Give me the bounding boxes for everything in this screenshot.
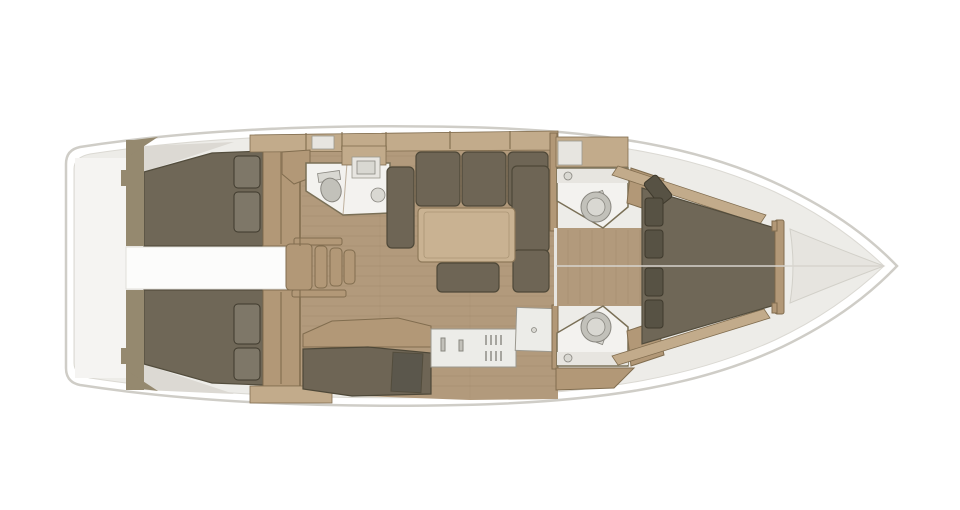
galley-faucet bbox=[441, 338, 445, 351]
aft-bulkhead-notch-top bbox=[121, 170, 126, 186]
aft-starboard-pillow-1 bbox=[234, 304, 260, 344]
galley-sink-handle bbox=[459, 340, 463, 351]
aft-bulkhead-notch-bottom bbox=[121, 348, 126, 364]
fwd-bed-footboard bbox=[775, 220, 784, 314]
yacht-floor-plan: Sailing yacht interior layout, top-down … bbox=[0, 0, 960, 510]
sofa-back-2 bbox=[462, 152, 506, 206]
aft-head-vanity-basin bbox=[357, 161, 375, 174]
fwd-corridor-doorframe bbox=[554, 228, 557, 306]
aft-walkway bbox=[126, 247, 288, 289]
fwd-pillow-4 bbox=[645, 300, 663, 328]
fwd-head-starboard-sink bbox=[564, 354, 572, 362]
stern-platform bbox=[75, 158, 126, 378]
fwd-corridor-floor bbox=[556, 228, 648, 306]
galley-worktop-dot bbox=[532, 328, 537, 333]
aft-head-sink bbox=[371, 188, 385, 202]
salon-table bbox=[418, 208, 515, 262]
fwd-pillow-1 bbox=[645, 198, 663, 226]
floor-plan-stage: Sailing yacht interior layout, top-down … bbox=[0, 0, 960, 510]
sofa-arm-left bbox=[387, 167, 414, 248]
sofa-chaise-right bbox=[513, 250, 549, 292]
aft-port-pillow-2 bbox=[234, 192, 260, 232]
fwd-upper-cabinet bbox=[558, 141, 582, 165]
fwd-pillow-3 bbox=[645, 268, 663, 296]
fwd-head-port-toilet-seat bbox=[587, 198, 605, 216]
top-lockers-band bbox=[250, 131, 558, 152]
step-tread-3 bbox=[344, 250, 355, 284]
sofa-corner-right bbox=[512, 166, 549, 252]
sofa-back-1 bbox=[416, 152, 460, 206]
galley-oven-panel bbox=[391, 352, 423, 393]
fwd-head-starboard-toilet-seat bbox=[587, 318, 605, 336]
steps-base bbox=[286, 244, 312, 290]
step-tread-2 bbox=[330, 248, 342, 286]
aft-starboard-pillow-2 bbox=[234, 348, 260, 380]
aft-port-pillow-1 bbox=[234, 156, 260, 188]
salon-bench bbox=[437, 263, 499, 292]
fwd-footboard-notch-bottom bbox=[772, 303, 777, 313]
step-tread-1 bbox=[315, 246, 327, 288]
companionway-hatch bbox=[312, 136, 334, 149]
fwd-pillow-2 bbox=[645, 230, 663, 258]
fwd-footboard-notch-top bbox=[772, 221, 777, 231]
fwd-head-port-sink bbox=[564, 172, 572, 180]
